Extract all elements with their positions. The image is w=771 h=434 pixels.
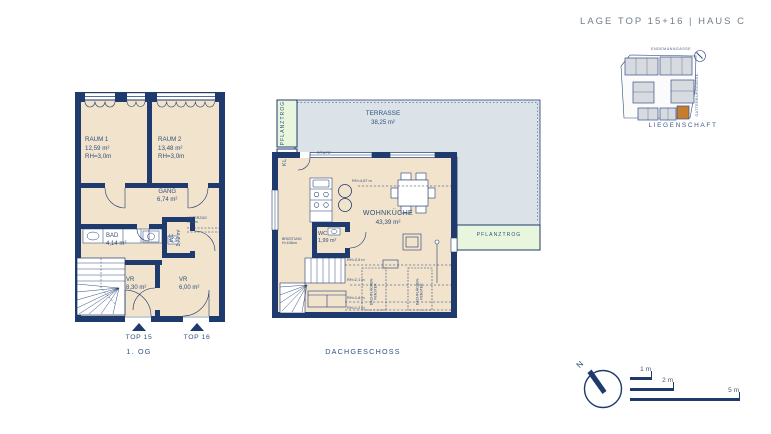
scale-bar-1m: [630, 377, 652, 380]
room-label-vr1: VR 8,30 m²: [126, 276, 146, 293]
roof-window-label: DACHFLÄCHEN- FENSTER: [370, 270, 379, 314]
room-height: RH=3,0m: [85, 153, 111, 162]
room-label-raum2: RAUM 2 13,48 m² RH=3,0m: [158, 136, 184, 162]
kl-label: KL: [282, 149, 292, 175]
room-name: GANG: [157, 188, 177, 196]
room-name: VR: [179, 276, 199, 284]
kitchen-counter: [310, 178, 332, 222]
planter-label-right: PFLANZTROG: [460, 232, 538, 239]
room-name: TERRASSE: [345, 110, 421, 119]
page-title: LAGE TOP 15+16 | HAUS C: [556, 15, 746, 28]
room-area: 43,39 m²: [352, 219, 424, 228]
scale-tick: [673, 382, 674, 388]
street-label-top: ENDEMANNGASSE: [640, 47, 702, 52]
street-label-right: GATTERBURGGASSE: [695, 65, 703, 125]
roof-height-label: RH=2,1 m: [347, 277, 365, 282]
scale-label-1m: 1 m: [630, 366, 651, 375]
room-name: WOHNKÜCHE: [352, 209, 424, 219]
entrance-arrow-icon: [132, 323, 146, 331]
scale-label-5m: 5 m: [718, 387, 739, 396]
room-area: 4,14 m²: [106, 240, 126, 248]
roof-window-label: DACHFLÄCHEN- FENSTER: [416, 270, 425, 314]
room-name: RAUM 1: [85, 136, 111, 145]
room-area: 1,72 m²: [176, 221, 183, 255]
scale-tick: [739, 392, 740, 398]
parapet-annotation: BRÜSTUNG H=108cm: [282, 237, 302, 246]
planter-label-left: PFLANZTROG: [280, 93, 294, 153]
room-area: 1,99 m²: [318, 238, 350, 245]
scale-label-2m: 2 m: [652, 377, 673, 386]
entrance-label-top16: TOP 16: [179, 333, 215, 342]
room-name: BAD: [106, 232, 126, 240]
room-label-wc-og: WC 1,72 m²: [169, 221, 185, 255]
room-name: VR: [126, 276, 146, 284]
room-area: 6,00 m²: [179, 284, 199, 292]
room-label-raum1: RAUM 1 12,59 m² RH=3,0m: [85, 136, 111, 162]
site-plan-caption: LIEGENSCHAFT: [648, 122, 718, 131]
annotation-line: ±30cm: [187, 220, 207, 224]
step-annotation: STUFE: [317, 151, 331, 156]
unterzug-annotation: UNTERZUG ±30cm: [187, 216, 207, 225]
ceiling-height-annotation: RH=4,57 m: [352, 178, 372, 183]
room-label-wohnkueche: WOHNKÜCHE 43,39 m²: [352, 209, 424, 227]
floor-caption-dg: DACHGESCHOSS: [315, 347, 411, 357]
floor-caption-og: 1. OG: [116, 347, 162, 357]
entrance-label-top15: TOP 15: [121, 333, 157, 342]
room-area: 13,48 m²: [158, 145, 184, 154]
og-staircase: [77, 258, 125, 315]
room-label-gang: GANG 6,74 m²: [157, 188, 177, 205]
room-label-wc-dg: WC 1,99 m²: [318, 231, 350, 246]
scale-bar-5m: [630, 398, 740, 401]
room-name: WC: [318, 231, 350, 238]
entrance-arrow-icon: [190, 323, 204, 331]
room-area: 6,74 m²: [157, 196, 177, 204]
room-area: 12,59 m²: [85, 145, 111, 154]
roof-height-label: RH=1,6 m: [347, 295, 365, 300]
room-label-bad: BAD 4,14 m²: [106, 232, 126, 249]
roof-height-label: RH=2,5 m: [347, 257, 365, 262]
room-height: RH=3,0m: [158, 153, 184, 162]
roof-height-label: RH=1,2 m: [347, 305, 365, 310]
annotation-line: H=108cm: [282, 241, 302, 245]
room-label-terrasse: TERRASSE 38,25 m²: [345, 110, 421, 127]
room-name: RAUM 2: [158, 136, 184, 145]
floor-plan-og-drawing: [75, 92, 225, 324]
scale-bar-2m: [630, 388, 674, 391]
annotation-line: FENSTER: [374, 270, 378, 314]
annotation-line: FENSTER: [420, 270, 424, 314]
highlight-unit: [677, 106, 689, 119]
room-area: 8,30 m²: [126, 284, 146, 292]
room-area: 38,25 m²: [345, 119, 421, 127]
room-label-vr2: VR 6,00 m²: [179, 276, 199, 293]
